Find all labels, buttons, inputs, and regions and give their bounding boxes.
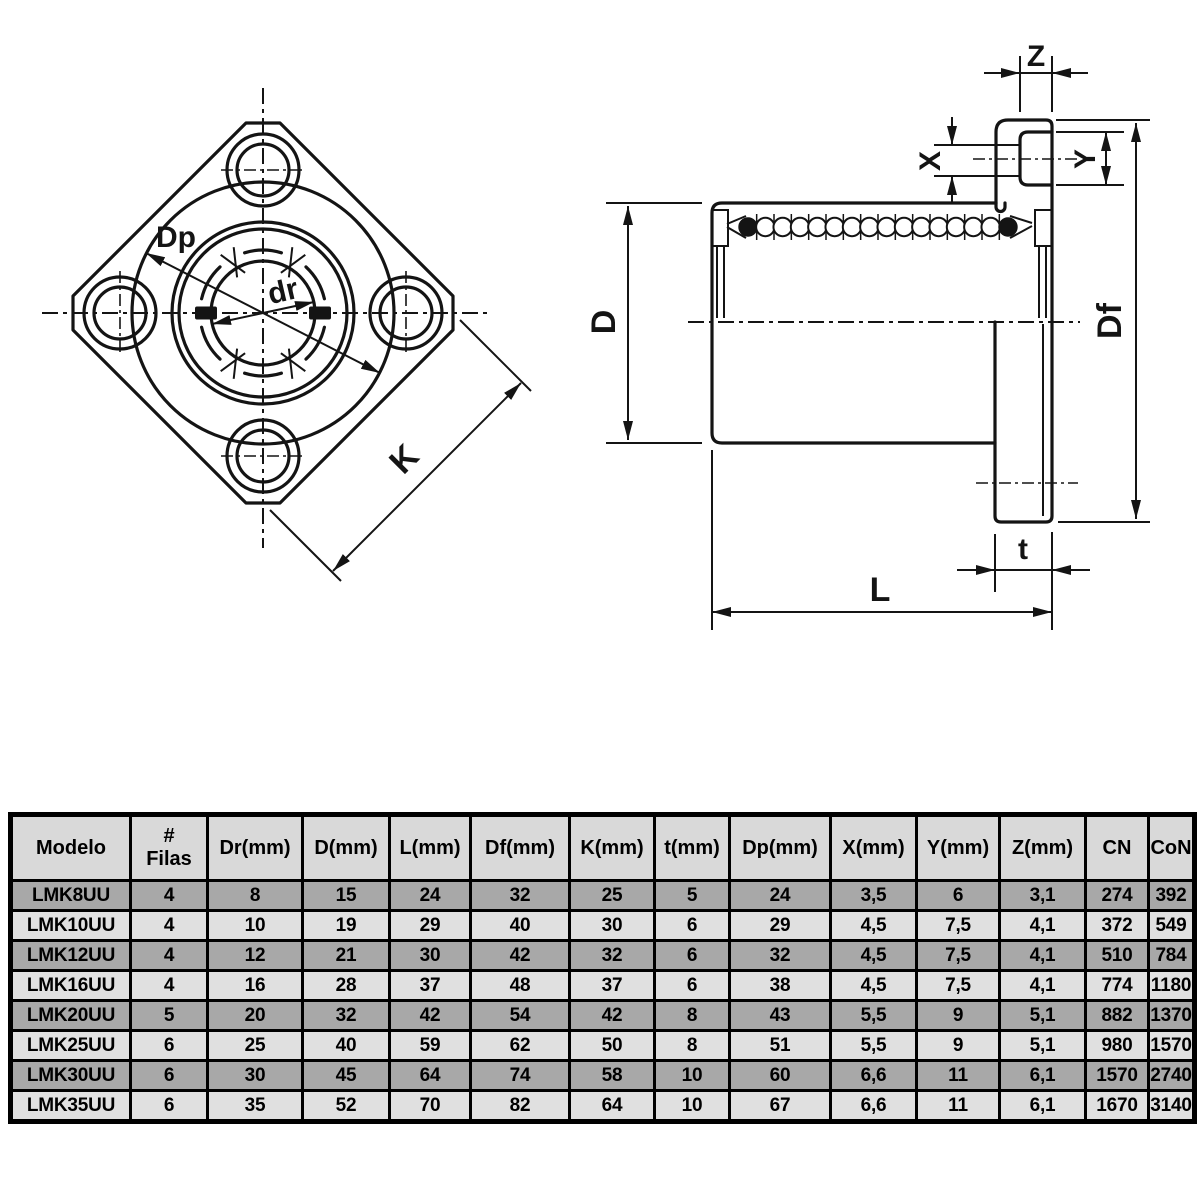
value-cell: 7,5	[917, 911, 1000, 941]
value-cell: 50	[570, 1031, 655, 1061]
value-cell: 29	[730, 911, 831, 941]
column-header: t(mm)	[655, 815, 730, 881]
value-cell: 10	[655, 1061, 730, 1091]
value-cell: 4	[131, 971, 208, 1001]
value-cell: 12	[208, 941, 303, 971]
value-cell: 3,1	[1000, 881, 1086, 911]
value-cell: 40	[471, 911, 570, 941]
value-cell: 30	[570, 911, 655, 941]
l-label: L	[870, 571, 891, 609]
value-cell: 1180	[1149, 971, 1195, 1001]
dp-label: Dp	[156, 221, 196, 254]
value-cell: 6	[655, 971, 730, 1001]
value-cell: 54	[471, 1001, 570, 1031]
table-row: LMK8UU48152432255243,563,1274392	[11, 881, 1195, 911]
column-header: Dr(mm)	[208, 815, 303, 881]
value-cell: 774	[1086, 971, 1149, 1001]
value-cell: 4,1	[1000, 941, 1086, 971]
ball	[999, 218, 1017, 236]
column-header: Df(mm)	[471, 815, 570, 881]
value-cell: 24	[730, 881, 831, 911]
value-cell: 15	[303, 881, 390, 911]
t-label: t	[1018, 533, 1028, 566]
column-header: K(mm)	[570, 815, 655, 881]
value-cell: 3140	[1149, 1091, 1195, 1122]
column-header: X(mm)	[831, 815, 917, 881]
k-extension-line-2	[270, 510, 341, 581]
value-cell: 6	[131, 1061, 208, 1091]
df-label: Df	[1091, 302, 1129, 339]
ball	[808, 218, 826, 236]
value-cell: 64	[570, 1091, 655, 1122]
value-cell: 4	[131, 941, 208, 971]
value-cell: 40	[303, 1031, 390, 1061]
value-cell: 10	[208, 911, 303, 941]
value-cell: 9	[917, 1031, 1000, 1061]
ball	[877, 218, 895, 236]
value-cell: 42	[570, 1001, 655, 1031]
table-row: LMK20UU520324254428435,595,18821370	[11, 1001, 1195, 1031]
ball	[825, 218, 843, 236]
ball	[756, 218, 774, 236]
value-cell: 51	[730, 1031, 831, 1061]
value-cell: 43	[730, 1001, 831, 1031]
value-cell: 52	[303, 1091, 390, 1122]
page: Dp dr K	[0, 0, 1200, 1200]
value-cell: 67	[730, 1091, 831, 1122]
table-row: LMK16UU416283748376384,57,54,17741180	[11, 971, 1195, 1001]
model-cell: LMK12UU	[11, 941, 131, 971]
value-cell: 5,1	[1000, 1031, 1086, 1061]
value-cell: 37	[390, 971, 471, 1001]
value-cell: 510	[1086, 941, 1149, 971]
value-cell: 549	[1149, 911, 1195, 941]
value-cell: 5	[655, 881, 730, 911]
value-cell: 9	[917, 1001, 1000, 1031]
value-cell: 20	[208, 1001, 303, 1031]
value-cell: 19	[303, 911, 390, 941]
value-cell: 70	[390, 1091, 471, 1122]
value-cell: 5,5	[831, 1031, 917, 1061]
value-cell: 7,5	[917, 941, 1000, 971]
seal-groove-hook	[996, 203, 1005, 212]
value-cell: 5,5	[831, 1001, 917, 1031]
value-cell: 274	[1086, 881, 1149, 911]
value-cell: 882	[1086, 1001, 1149, 1031]
value-cell: 82	[471, 1091, 570, 1122]
ball-mark-right	[309, 307, 331, 320]
value-cell: 8	[208, 881, 303, 911]
value-cell: 7,5	[917, 971, 1000, 1001]
table-row: LMK30UU6304564745810606,6116,115702740	[11, 1061, 1195, 1091]
value-cell: 25	[570, 881, 655, 911]
value-cell: 64	[390, 1061, 471, 1091]
value-cell: 30	[208, 1061, 303, 1091]
value-cell: 42	[390, 1001, 471, 1031]
ball	[860, 218, 878, 236]
ball	[929, 218, 947, 236]
model-cell: LMK10UU	[11, 911, 131, 941]
value-cell: 28	[303, 971, 390, 1001]
model-cell: LMK16UU	[11, 971, 131, 1001]
value-cell: 784	[1149, 941, 1195, 971]
value-cell: 32	[570, 941, 655, 971]
x-label: X	[914, 151, 947, 171]
value-cell: 4	[131, 911, 208, 941]
y-label: Y	[1069, 149, 1102, 169]
value-cell: 6	[917, 881, 1000, 911]
value-cell: 58	[570, 1061, 655, 1091]
side-view: D Df L t Z	[585, 40, 1150, 630]
value-cell: 6,6	[831, 1061, 917, 1091]
model-cell: LMK30UU	[11, 1061, 131, 1091]
ball	[895, 218, 913, 236]
value-cell: 10	[655, 1091, 730, 1122]
model-cell: LMK8UU	[11, 881, 131, 911]
table-body: LMK8UU48152432255243,563,1274392LMK10UU4…	[11, 881, 1195, 1122]
ball	[947, 218, 965, 236]
k-dimension-line	[333, 383, 521, 571]
column-header: # Filas	[131, 815, 208, 881]
value-cell: 6	[655, 941, 730, 971]
value-cell: 25	[208, 1031, 303, 1061]
model-cell: LMK35UU	[11, 1091, 131, 1122]
value-cell: 35	[208, 1091, 303, 1122]
k-extension-line-1	[460, 320, 531, 391]
value-cell: 24	[390, 881, 471, 911]
value-cell: 6	[655, 911, 730, 941]
value-cell: 48	[471, 971, 570, 1001]
model-cell: LMK25UU	[11, 1031, 131, 1061]
value-cell: 1570	[1149, 1031, 1195, 1061]
ball	[773, 218, 791, 236]
ball-chain	[739, 214, 1017, 240]
value-cell: 8	[655, 1001, 730, 1031]
value-cell: 37	[570, 971, 655, 1001]
value-cell: 6,1	[1000, 1061, 1086, 1091]
value-cell: 21	[303, 941, 390, 971]
value-cell: 62	[471, 1031, 570, 1061]
ball-mark-left	[195, 307, 217, 320]
k-label: K	[382, 437, 427, 482]
z-label: Z	[1027, 40, 1045, 73]
value-cell: 74	[471, 1061, 570, 1091]
value-cell: 30	[390, 941, 471, 971]
d-label: D	[585, 310, 623, 335]
value-cell: 4,5	[831, 971, 917, 1001]
value-cell: 8	[655, 1031, 730, 1061]
column-header: CN	[1086, 815, 1149, 881]
value-cell: 11	[917, 1091, 1000, 1122]
value-cell: 32	[303, 1001, 390, 1031]
value-cell: 3,5	[831, 881, 917, 911]
table-header-row: Modelo# FilasDr(mm)D(mm)L(mm)Df(mm)K(mm)…	[11, 815, 1195, 881]
value-cell: 45	[303, 1061, 390, 1091]
column-header: Y(mm)	[917, 815, 1000, 881]
value-cell: 60	[730, 1061, 831, 1091]
value-cell: 38	[730, 971, 831, 1001]
value-cell: 392	[1149, 881, 1195, 911]
ball	[981, 218, 999, 236]
value-cell: 6	[131, 1031, 208, 1061]
value-cell: 4,1	[1000, 911, 1086, 941]
value-cell: 42	[471, 941, 570, 971]
value-cell: 6,6	[831, 1091, 917, 1122]
value-cell: 1370	[1149, 1001, 1195, 1031]
table-row: LMK10UU410192940306294,57,54,1372549	[11, 911, 1195, 941]
column-header: Modelo	[11, 815, 131, 881]
value-cell: 4,5	[831, 911, 917, 941]
dimensions-table: Modelo# FilasDr(mm)D(mm)L(mm)Df(mm)K(mm)…	[8, 812, 1197, 1124]
ball	[739, 218, 757, 236]
column-header: D(mm)	[303, 815, 390, 881]
ball	[843, 218, 861, 236]
value-cell: 6,1	[1000, 1091, 1086, 1122]
value-cell: 4	[131, 881, 208, 911]
model-cell: LMK20UU	[11, 1001, 131, 1031]
ball	[964, 218, 982, 236]
ball	[912, 218, 930, 236]
value-cell: 5	[131, 1001, 208, 1031]
value-cell: 32	[471, 881, 570, 911]
value-cell: 6	[131, 1091, 208, 1122]
column-header: L(mm)	[390, 815, 471, 881]
column-header: Dp(mm)	[730, 815, 831, 881]
value-cell: 372	[1086, 911, 1149, 941]
value-cell: 16	[208, 971, 303, 1001]
table-row: LMK12UU412213042326324,57,54,1510784	[11, 941, 1195, 971]
value-cell: 980	[1086, 1031, 1149, 1061]
table-row: LMK35UU6355270826410676,6116,116703140	[11, 1091, 1195, 1122]
column-header: CoN	[1149, 815, 1195, 881]
dr-label: dr	[265, 272, 302, 311]
value-cell: 29	[390, 911, 471, 941]
value-cell: 2740	[1149, 1061, 1195, 1091]
value-cell: 1570	[1086, 1061, 1149, 1091]
technical-drawing: Dp dr K	[0, 0, 1200, 800]
column-header: Z(mm)	[1000, 815, 1086, 881]
value-cell: 4,1	[1000, 971, 1086, 1001]
value-cell: 32	[730, 941, 831, 971]
front-view: Dp dr K	[42, 88, 531, 581]
value-cell: 11	[917, 1061, 1000, 1091]
value-cell: 59	[390, 1031, 471, 1061]
value-cell: 5,1	[1000, 1001, 1086, 1031]
value-cell: 4,5	[831, 941, 917, 971]
ball	[791, 218, 809, 236]
table-row: LMK25UU625405962508515,595,19801570	[11, 1031, 1195, 1061]
value-cell: 1670	[1086, 1091, 1149, 1122]
